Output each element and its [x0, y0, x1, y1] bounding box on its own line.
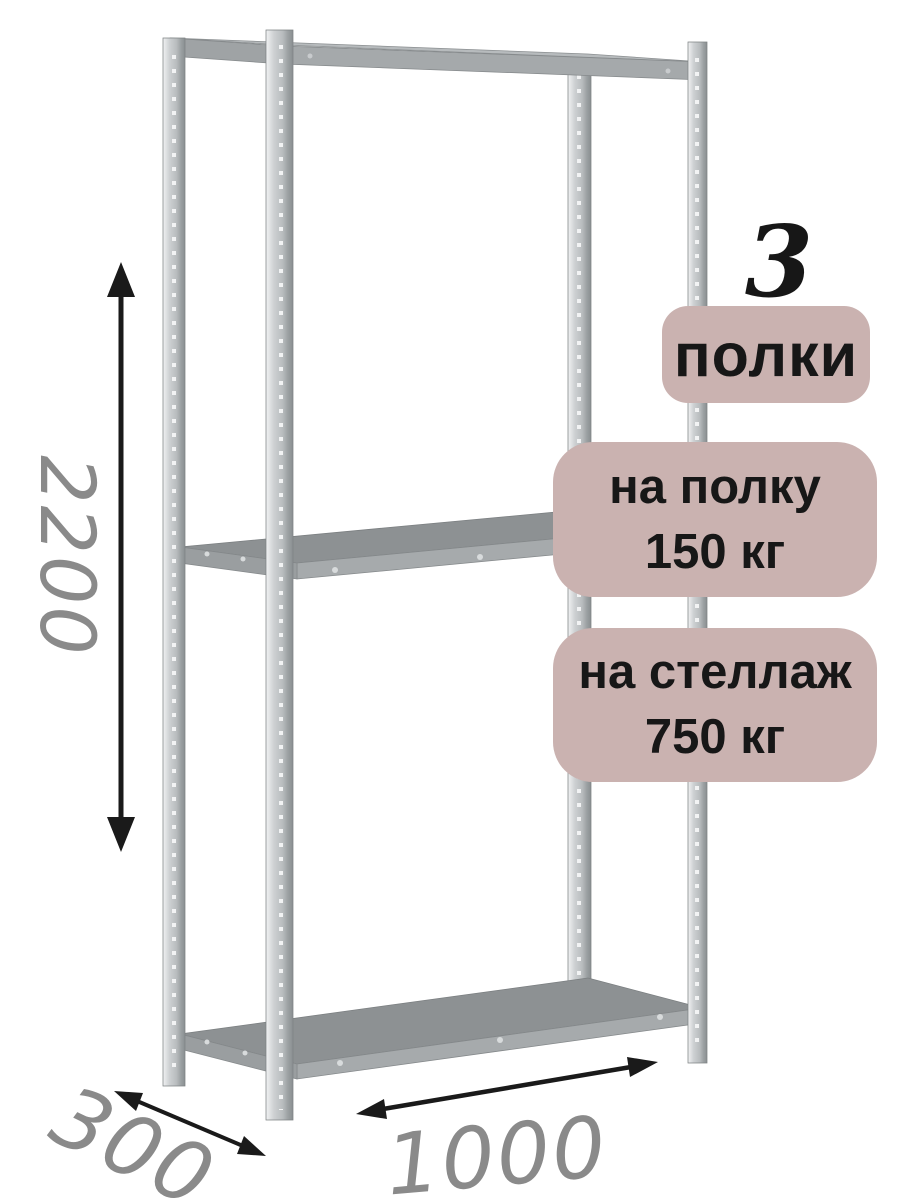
- shelf-count-label: полки: [674, 320, 858, 390]
- width-dimension-label: 1000: [344, 1101, 651, 1200]
- post-back-left: [163, 38, 185, 1086]
- shelf-count-badge: полки: [662, 306, 870, 403]
- rack-load-value: 750 кг: [645, 705, 785, 770]
- shelf-load-value: 150 кг: [645, 520, 785, 585]
- bottom-shelf: [180, 978, 702, 1079]
- shelf-count-number: 3: [724, 214, 834, 312]
- shelving-rack-illustration: [0, 0, 900, 1200]
- height-dimension-label: 2200: [27, 406, 105, 706]
- shelf-load-badge: на полку 150 кг: [553, 442, 877, 597]
- rack-load-badge: на стеллаж 750 кг: [553, 628, 877, 782]
- post-front-left: [266, 30, 293, 1120]
- rack-load-label: на стеллаж: [578, 640, 851, 705]
- top-shelf: [170, 38, 704, 80]
- shelf-load-label: на полку: [609, 455, 821, 520]
- product-dimension-diagram: 2200 300 1000 3 полки на полку 150 кг на…: [0, 0, 900, 1200]
